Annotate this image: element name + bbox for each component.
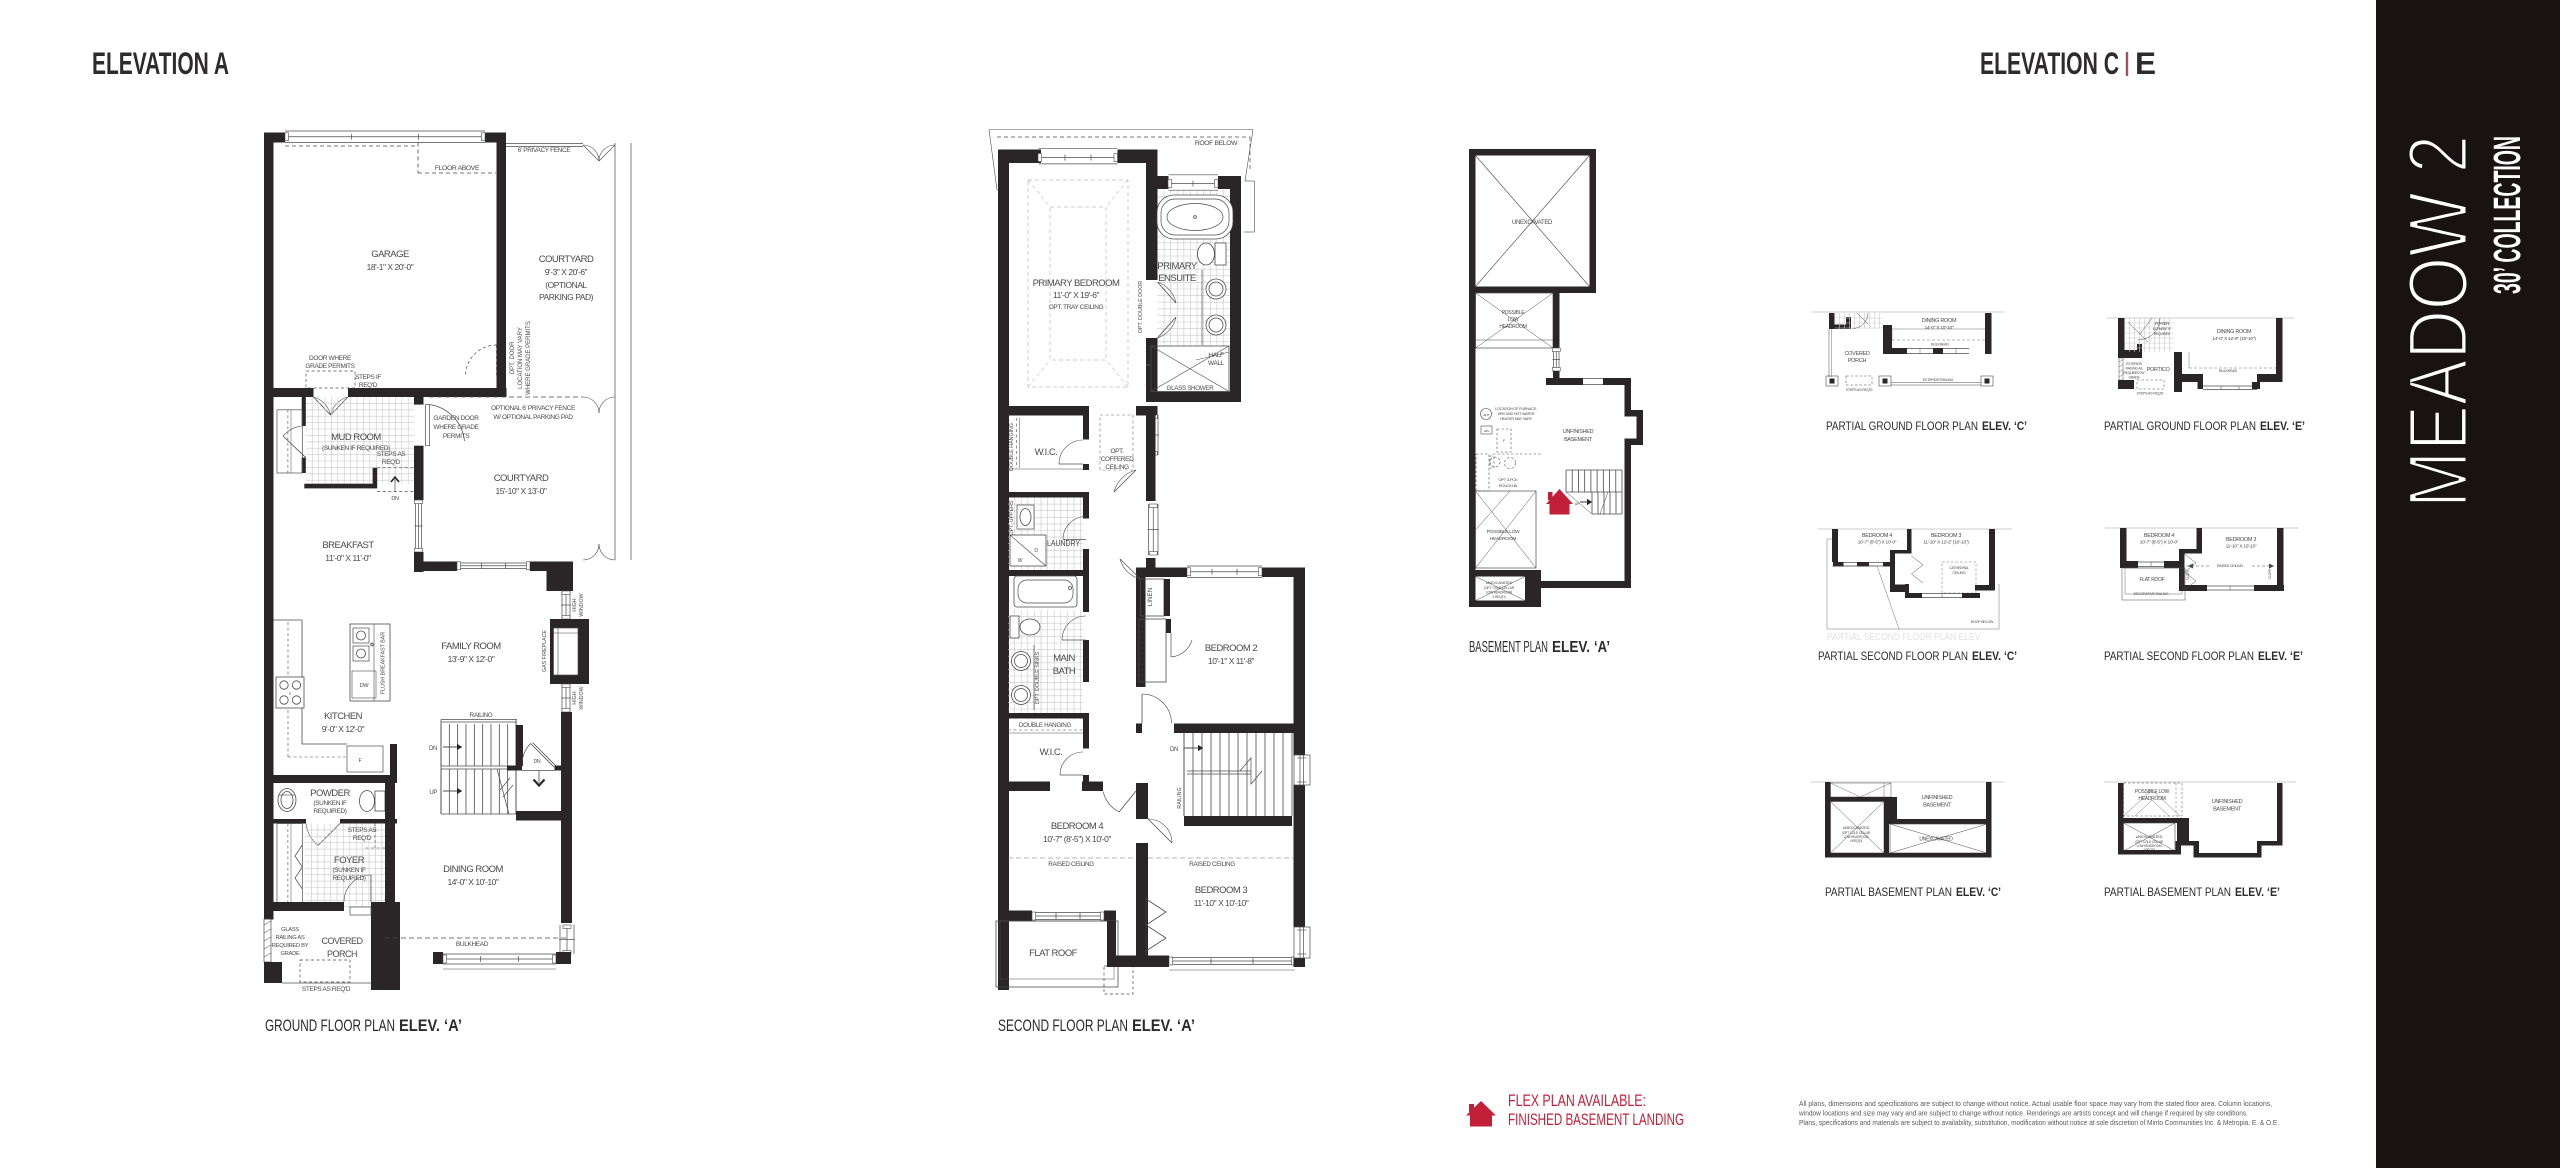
svg-text:CEILING: CEILING [1105,464,1129,471]
svg-text:MAIN: MAIN [1053,653,1075,664]
svg-text:FOYER: FOYER [334,855,365,866]
svg-text:‘E’: ‘E’ [2290,651,2303,663]
svg-text:HRV: HRV [1484,429,1490,433]
svg-text:FLAT ROOF: FLAT ROOF [1029,948,1077,959]
svg-text:ELEV.: ELEV. [2258,651,2287,663]
svg-text:ELEV.: ELEV. [1956,887,1985,899]
svg-text:STEPS AS REQ'D: STEPS AS REQ'D [1846,388,1873,392]
svg-text:ROUGH-IN: ROUGH-IN [1499,483,1518,488]
svg-text:RAILING AS: RAILING AS [275,935,304,941]
svg-text:COURTYARD: COURTYARD [539,254,594,265]
svg-text:MUD ROOM: MUD ROOM [331,432,381,443]
svg-text:KITCHEN: KITCHEN [324,711,363,722]
svg-text:EXTERIOR: EXTERIOR [2126,362,2143,366]
svg-text:GAS FIREPLACE: GAS FIREPLACE [542,629,548,672]
svg-text:11'-10" X 10'-10": 11'-10" X 10'-10" [1194,898,1249,908]
svg-text:GRADE: GRADE [2128,376,2140,380]
svg-text:PARKING PAD): PARKING PAD) [539,292,594,302]
svg-text:PORCH: PORCH [1848,358,1867,364]
svg-text:ROOF BELOW: ROOF BELOW [1195,140,1238,147]
svg-text:FLUSH BREAKFAST BAR: FLUSH BREAKFAST BAR [381,632,387,694]
svg-text:DINING ROOM: DINING ROOM [1922,318,1957,324]
svg-text:BULKHEAD: BULKHEAD [456,941,489,948]
svg-text:(SUNKEN IF: (SUNKEN IF [313,800,347,807]
svg-text:FLOOR ABOVE: FLOOR ABOVE [435,165,480,172]
svg-text:HEADROOM: HEADROOM [1499,324,1526,330]
svg-text:18'-1" X 20'-0": 18'-1" X 20'-0" [367,262,414,272]
svg-text:OPT. TRAY CEILING: OPT. TRAY CEILING [1049,304,1104,311]
svg-text:PARTIAL SECOND FLOOR PLAN ELEV: PARTIAL SECOND FLOOR PLAN ELEV. [1827,632,1982,643]
svg-text:UNEXCAVATED: UNEXCAVATED [1512,220,1553,226]
svg-text:‘A’: ‘A’ [1594,639,1610,656]
svg-text:‘A’: ‘A’ [1177,1017,1195,1035]
svg-text:FLAT ROOF: FLAT ROOF [2139,577,2164,583]
svg-text:(OPTIONAL: (OPTIONAL [545,280,587,290]
svg-text:BEDROOM 4: BEDROOM 4 [1862,533,1893,539]
svg-text:E: E [2135,45,2155,81]
svg-text:BREAKFAST: BREAKFAST [322,540,374,551]
svg-text:ELEMENT IF: ELEMENT IF [2153,327,2171,331]
svg-text:BASEMENT: BASEMENT [2213,807,2242,813]
svg-text:ELEV.: ELEV. [1132,1017,1173,1035]
svg-text:LOCATION MAY VARY: LOCATION MAY VARY [518,327,524,389]
svg-text:WHERE GRADE: WHERE GRADE [433,424,479,431]
svg-text:11'-0" X 11'-0": 11'-0" X 11'-0" [325,553,371,563]
svg-text:FOYER: FOYER [2155,321,2170,326]
svg-text:STEPS IF: STEPS IF [355,374,381,381]
svg-text:ELEVATION A: ELEVATION A [92,45,229,81]
svg-text:SLOPE: SLOPE [2186,570,2190,581]
svg-text:REQ'D: REQ'D [382,459,401,466]
svg-text:OPT 3-PCE: OPT 3-PCE [1498,477,1518,482]
svg-text:CATHEDRAL: CATHEDRAL [1949,566,1969,570]
svg-text:BASEMENT: BASEMENT [1564,437,1593,443]
svg-text:DN: DN [534,759,541,765]
svg-text:BEDROOM 3: BEDROOM 3 [1931,533,1962,539]
svg-text:DW: DW [360,683,370,689]
svg-text:HALF: HALF [1208,352,1224,359]
svg-text:REQUIRED BY: REQUIRED BY [272,943,309,949]
svg-text:BEDROOM 2: BEDROOM 2 [1205,643,1258,654]
svg-text:ELEV.: ELEV. [1972,651,2001,663]
svg-text:DOUBLE HANGING: DOUBLE HANGING [1019,722,1072,729]
svg-text:PARTIAL SECOND FLOOR PLAN: PARTIAL SECOND FLOOR PLAN [1818,651,1968,663]
svg-text:FAMILY ROOM: FAMILY ROOM [441,641,501,652]
svg-text:STEPS AS: STEPS AS [377,451,407,458]
svg-text:BASEMENT: BASEMENT [1923,803,1952,809]
svg-text:PORTICO: PORTICO [2147,367,2171,373]
svg-text:GRADE: GRADE [280,951,299,957]
svg-text:RAILING: RAILING [470,712,493,719]
svg-text:HIGH: HIGH [572,691,578,704]
svg-text:REQUIRED): REQUIRED) [313,808,346,815]
svg-text:Plans, specifications and mate: Plans, specifications and materials are … [1799,1118,2279,1127]
svg-text:W.I.C.: W.I.C. [1040,747,1063,758]
svg-text:UNEXCAVATED: UNEXCAVATED [1919,837,1953,843]
svg-text:GLASS: GLASS [281,927,299,933]
svg-text:HEATER MAY VARY: HEATER MAY VARY [1500,417,1533,421]
svg-text:30’ COLLECTION: 30’ COLLECTION [2487,136,2529,294]
svg-text:13'-9" X 12'-0": 13'-9" X 12'-0" [448,654,495,664]
svg-text:DINING ROOM: DINING ROOM [2217,329,2252,335]
svg-text:SECOND FLOOR PLAN: SECOND FLOOR PLAN [998,1017,1128,1035]
svg-text:HIGH: HIGH [572,598,578,611]
svg-text:OPT. UPPERS: OPT. UPPERS [1009,500,1015,535]
svg-text:10'-7" (8'-5") X 10'-0": 10'-7" (8'-5") X 10'-0" [2140,540,2179,546]
svg-text:FINISHED BASEMENT LANDING: FINISHED BASEMENT LANDING [1508,1110,1684,1129]
svg-text:ELEV.: ELEV. [1982,421,2011,433]
svg-text:F: F [359,758,362,764]
svg-text:RAISED CEILING: RAISED CEILING [1048,861,1094,868]
svg-text:COVERED: COVERED [1844,351,1869,357]
svg-text:POSSIBLE LOW: POSSIBLE LOW [1487,529,1521,535]
svg-text:REQ'D: REQ'D [353,835,372,842]
svg-text:PRIMARY BEDROOM: PRIMARY BEDROOM [1033,278,1120,289]
svg-text:GLASS SHOWER: GLASS SHOWER [1167,385,1215,392]
svg-text:UNFINISHED: UNFINISHED [1922,795,1953,801]
svg-text:ELEVATION C: ELEVATION C [1980,45,2119,81]
svg-text:WINDOW: WINDOW [579,593,585,616]
svg-text:HEADROOM: HEADROOM [1490,536,1516,542]
svg-text:ROOF BELOW: ROOF BELOW [1971,620,1994,624]
svg-text:14'-0" X 10'-10": 14'-0" X 10'-10" [448,877,499,887]
svg-text:STEPS AS REQ'D: STEPS AS REQ'D [302,986,351,993]
svg-text:REQ'D: REQ'D [359,382,378,389]
svg-text:OPT.: OPT. [1110,448,1124,455]
svg-text:CEILING: CEILING [1953,571,1966,575]
svg-text:WINDOW: WINDOW [579,686,585,709]
svg-text:11'-0" X 19'-6": 11'-0" X 19'-6" [1053,290,1099,300]
svg-text:ENSUITE: ENSUITE [1158,273,1196,284]
svg-text:BEDROOM 4: BEDROOM 4 [2144,533,2175,539]
svg-text:10'-1" X 11'-8": 10'-1" X 11'-8" [1208,656,1254,666]
svg-text:STEPS AS REQ'D: STEPS AS REQ'D [2137,392,2164,396]
svg-text:F: F [1503,439,1505,443]
svg-text:RAISED CEILING: RAISED CEILING [1189,861,1235,868]
svg-text:GARDEN DOOR: GARDEN DOOR [433,415,479,422]
svg-text:RAILING: RAILING [1177,787,1183,808]
svg-text:9'-0" X 12'-0": 9'-0" X 12'-0" [322,724,365,734]
svg-text:LOCATION OF FURNACE,: LOCATION OF FURNACE, [1495,407,1537,411]
svg-text:RAILING AS: RAILING AS [2126,367,2144,371]
svg-text:PORCH: PORCH [327,949,357,959]
svg-text:MEADOW 2: MEADOW 2 [2391,135,2485,508]
svg-text:‘A’: ‘A’ [444,1017,462,1035]
svg-text:LOW: LOW [1508,317,1519,323]
svg-text:‘E’: ‘E’ [2267,887,2280,899]
svg-text:UNEXCAVATED: UNEXCAVATED [1843,825,1870,830]
svg-text:PRIMARY: PRIMARY [1157,261,1198,272]
svg-text:DOOR WHERE: DOOR WHERE [309,355,352,362]
svg-text:WHT: WHT [1483,413,1489,417]
svg-text:BULKHEAD: BULKHEAD [2219,369,2237,373]
svg-text:BEDROOM 3: BEDROOM 3 [1195,885,1248,896]
svg-text:WHERE GRADE PERMITS: WHERE GRADE PERMITS [526,321,532,395]
svg-text:OPT. DOOR: OPT. DOOR [510,341,516,375]
svg-text:14'-0" X 12'-8" (10'-10"): 14'-0" X 12'-8" (10'-10") [2212,336,2256,342]
svg-text:DN: DN [1170,747,1178,753]
svg-text:UNFINISHED: UNFINISHED [2212,799,2243,805]
svg-text:ELEV.: ELEV. [1552,639,1590,656]
svg-text:‘E’: ‘E’ [2292,421,2305,433]
svg-text:W/ OPTIONAL PARKING PAD: W/ OPTIONAL PARKING PAD [493,414,573,421]
svg-text:All plans, dimensions and spec: All plans, dimensions and specifications… [1799,1099,2272,1108]
svg-text:UNEXCAVATED: UNEXCAVATED [1486,580,1513,585]
svg-text:REQUIRED: REQUIRED [2154,332,2171,336]
svg-text:DINING ROOM: DINING ROOM [443,864,503,875]
svg-text:COURTYARD: COURTYARD [494,473,549,484]
svg-text:W: W [1018,558,1023,564]
svg-text:WALL: WALL [1208,360,1225,367]
svg-text:‘C’: ‘C’ [1988,887,2001,899]
svg-text:COVERED: COVERED [321,936,363,946]
svg-text:UP: UP [429,790,437,796]
svg-text:UNFINISHED: UNFINISHED [1563,429,1594,435]
svg-text:ELEV.: ELEV. [2235,887,2264,899]
svg-text:DN: DN [391,496,399,502]
svg-text:LINEN: LINEN [1147,587,1154,606]
svg-text:BEDROOM 3: BEDROOM 3 [2226,537,2257,543]
svg-text:DOUBLE HANGING: DOUBLE HANGING [1009,423,1015,471]
svg-text:POSSIBLE: POSSIBLE [1502,310,1525,316]
svg-text:6' PRIVACY FENCE: 6' PRIVACY FENCE [518,147,572,154]
svg-text:PARTIAL SECOND FLOOR PLAN: PARTIAL SECOND FLOOR PLAN [2104,651,2254,663]
svg-text:DECORATIVE RAILING: DECORATIVE RAILING [2134,592,2169,596]
svg-text:(SUNKEN IF: (SUNKEN IF [332,867,366,874]
svg-text:9'-3" X 20'-6": 9'-3" X 20'-6" [545,267,588,277]
svg-text:BASEMENT PLAN: BASEMENT PLAN [1469,639,1548,656]
svg-text:HRV AND HOT WATER: HRV AND HOT WATER [1498,412,1535,416]
svg-text:UNEXCAVATED: UNEXCAVATED [2136,834,2163,839]
svg-text:4 REQ'D): 4 REQ'D) [1850,839,1862,843]
svg-text:15'-10" X 13'-0": 15'-10" X 13'-0" [496,486,547,496]
svg-text:window locations and size may: window locations and size may vary and a… [1798,1109,2248,1118]
svg-text:POWDER: POWDER [310,788,350,799]
svg-text:BATH: BATH [1053,666,1076,677]
svg-text:RAISED CEILING: RAISED CEILING [2217,564,2243,568]
svg-text:COFFERED: COFFERED [1101,456,1135,463]
svg-text:EXTERIOR RAILING: EXTERIOR RAILING [1923,378,1954,382]
svg-text:UP: UP [1575,502,1581,506]
svg-text:HEADROOM: HEADROOM [2138,796,2165,802]
svg-text:OPTIONAL 6' PRIVACY FENCE: OPTIONAL 6' PRIVACY FENCE [491,405,576,412]
svg-text:ELEV.: ELEV. [399,1017,440,1035]
svg-text:BEDROOM 4: BEDROOM 4 [1051,821,1104,832]
svg-text:PARTIAL GROUND FLOOR PLAN: PARTIAL GROUND FLOOR PLAN [1826,421,1978,433]
svg-text:POSSIBLE LOW: POSSIBLE LOW [2135,789,2170,795]
svg-text:‘C’: ‘C’ [2014,421,2027,433]
svg-text:(OPT. COLD CELLAR: (OPT. COLD CELLAR [1484,586,1515,590]
svg-text:STEPS AS: STEPS AS [348,827,378,834]
svg-text:GARAGE: GARAGE [371,249,409,260]
svg-text:REQUIRED): REQUIRED) [332,875,365,882]
svg-text:W.I.C.: W.I.C. [1035,447,1058,458]
svg-text:PARTIAL BASEMENT PLAN: PARTIAL BASEMENT PLAN [1825,887,1952,899]
svg-text:GROUND FLOOR PLAN: GROUND FLOOR PLAN [265,1017,395,1035]
svg-text:GRADE PERMITS: GRADE PERMITS [305,363,355,370]
svg-text:SLOPE: SLOPE [2268,569,2272,580]
svg-text:PERMITS: PERMITS [443,433,470,440]
svg-text:10'-7" (8'-5") X 10'-0": 10'-7" (8'-5") X 10'-0" [1043,834,1111,844]
svg-text:OPT. DOUBLE DOOR: OPT. DOUBLE DOOR [1138,281,1144,334]
svg-text:BULKHEAD: BULKHEAD [1931,343,1949,347]
svg-text:OPT. DOUBLE SINKS: OPT. DOUBLE SINKS [1035,651,1041,704]
svg-text:11'-10" X 12'-2" (10'-10"): 11'-10" X 12'-2" (10'-10") [1923,540,1969,546]
svg-text:REQUIRED BY: REQUIRED BY [2123,371,2145,375]
svg-text:10'-7" (8'-5") X 10'-0": 10'-7" (8'-5") X 10'-0" [1858,540,1897,546]
svg-text:PARTIAL BASEMENT PLAN: PARTIAL BASEMENT PLAN [2104,887,2231,899]
svg-text:FLEX PLAN AVAILABLE:: FLEX PLAN AVAILABLE: [1508,1091,1646,1110]
svg-text:11'-10" X 10'-10": 11'-10" X 10'-10" [2226,544,2257,550]
svg-text:PARTIAL GROUND FLOOR PLAN: PARTIAL GROUND FLOOR PLAN [2104,421,2256,433]
svg-text:‘C’: ‘C’ [2004,651,2017,663]
svg-text:4 REQ'D): 4 REQ'D) [1493,595,1506,599]
svg-text:14'-0" X 10'-10": 14'-0" X 10'-10" [1925,325,1954,331]
svg-text:LOW HEADROOM: LOW HEADROOM [1486,591,1513,595]
svg-text:ELEV.: ELEV. [2260,421,2289,433]
svg-text:DN: DN [429,746,437,752]
